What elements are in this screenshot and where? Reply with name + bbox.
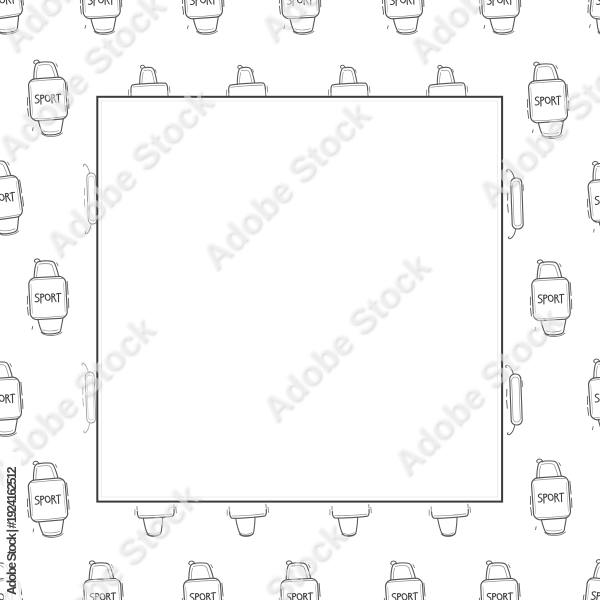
svg-text:Adobe Stock | #1924162512: Adobe Stock | #1924162512 [5, 466, 19, 595]
